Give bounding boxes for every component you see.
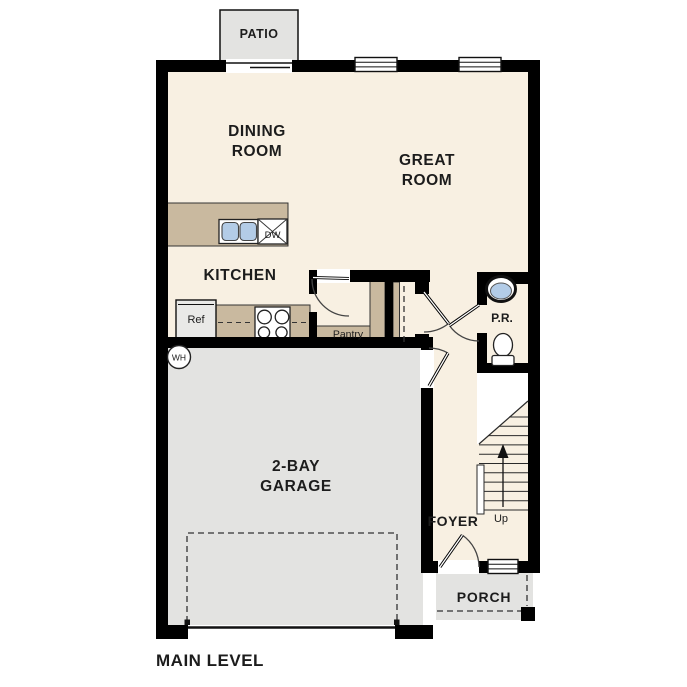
porch-post bbox=[521, 607, 535, 621]
plan-title: MAIN LEVEL bbox=[156, 651, 264, 670]
powder-room-label: P.R. bbox=[491, 311, 513, 325]
water-heater: WH bbox=[168, 346, 191, 369]
floor-plan-page: DW Ref bbox=[0, 0, 687, 687]
pantry-west-post-bottom bbox=[309, 312, 317, 348]
patio-door-opening bbox=[226, 59, 292, 73]
sink-basin-right bbox=[240, 223, 257, 241]
kitchen-island: DW bbox=[167, 203, 288, 246]
pantry-door-opening bbox=[317, 269, 350, 283]
bathroom-sink bbox=[487, 277, 516, 302]
svg-text:DINING: DINING bbox=[228, 123, 286, 140]
dishwasher: DW bbox=[258, 219, 287, 244]
svg-text:ROOM: ROOM bbox=[402, 172, 453, 189]
burner bbox=[258, 327, 269, 338]
sink-basin-left bbox=[222, 223, 239, 241]
stair-handrail bbox=[477, 465, 484, 514]
closet-door-post-top bbox=[415, 282, 429, 294]
burner bbox=[258, 310, 272, 324]
foyer-label: FOYER bbox=[428, 513, 479, 529]
kitchen-counter bbox=[216, 305, 310, 340]
track-anchor-right bbox=[394, 620, 400, 626]
svg-text:2-BAY: 2-BAY bbox=[272, 458, 320, 475]
porch-label: PORCH bbox=[457, 589, 512, 605]
closet-door-post-bottom bbox=[415, 334, 429, 348]
closet-shelf-strip bbox=[393, 282, 400, 344]
toilet bbox=[492, 334, 514, 366]
west-wall bbox=[156, 60, 168, 639]
pantry-side-shelf bbox=[370, 280, 385, 342]
dishwasher-label: DW bbox=[265, 230, 281, 241]
burner bbox=[276, 327, 287, 338]
refrigerator: Ref bbox=[176, 300, 216, 338]
svg-text:GREAT: GREAT bbox=[399, 152, 455, 169]
burner bbox=[275, 310, 289, 324]
closet-west-wall bbox=[385, 270, 393, 348]
stove bbox=[255, 307, 290, 340]
patio-label: PATIO bbox=[240, 27, 279, 41]
window-foyer bbox=[488, 560, 518, 574]
east-wall bbox=[528, 60, 540, 573]
svg-text:GARAGE: GARAGE bbox=[260, 478, 332, 495]
window-north-2 bbox=[459, 58, 501, 72]
refrigerator-label: Ref bbox=[187, 314, 205, 326]
water-heater-label: WH bbox=[172, 353, 186, 363]
kitchen-label: KITCHEN bbox=[203, 267, 276, 284]
window-north-1 bbox=[355, 58, 397, 72]
svg-text:ROOM: ROOM bbox=[232, 143, 283, 160]
pantry-label: Pantry bbox=[333, 329, 364, 341]
track-anchor-left bbox=[185, 620, 191, 626]
pantry-west-post-top bbox=[309, 270, 317, 294]
stairs-up-label: Up bbox=[494, 513, 508, 525]
floor-plan-drawing: DW Ref bbox=[0, 0, 687, 687]
